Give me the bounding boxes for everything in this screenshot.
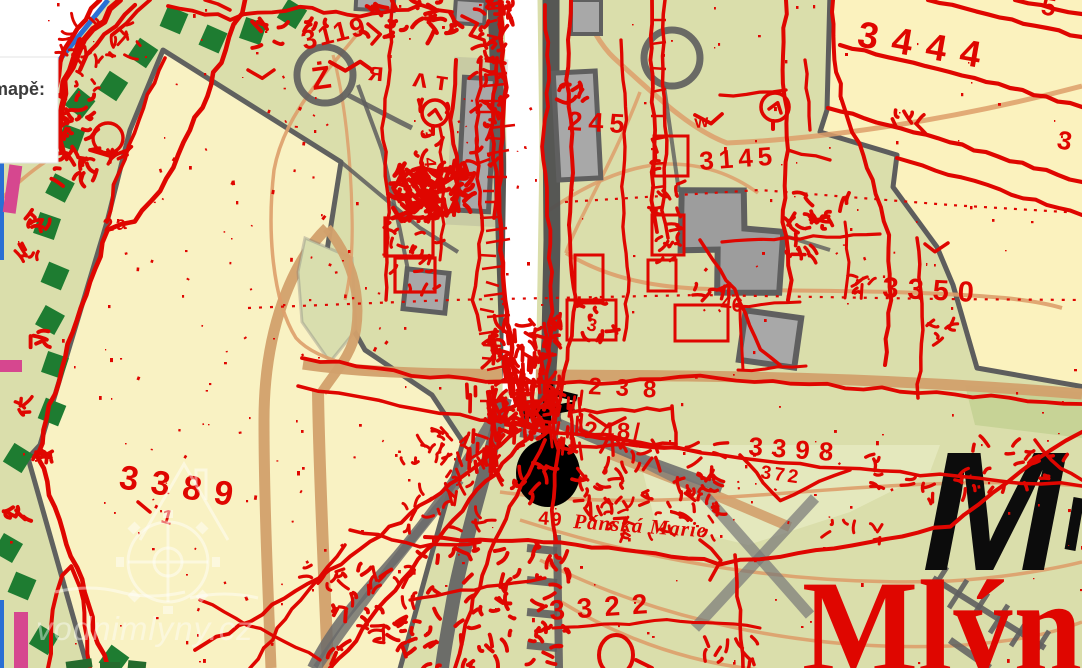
svg-text:49: 49 (538, 508, 565, 531)
svg-text:3145: 3145 (698, 141, 778, 176)
svg-text:245: 245 (567, 106, 632, 139)
svg-text:я: я (366, 56, 385, 87)
svg-text:3350: 3350 (882, 272, 984, 309)
svg-text:mapě:: mapě: (0, 79, 45, 99)
svg-text:vodnimlyny.cz: vodnimlyny.cz (36, 610, 254, 647)
svg-text:Mlýn: Mlýn (802, 553, 1082, 668)
svg-text:ʌт: ʌт (411, 62, 458, 98)
svg-text:2a: 2a (102, 213, 130, 237)
svg-text:w: w (693, 111, 711, 132)
svg-text:238: 238 (588, 373, 671, 404)
